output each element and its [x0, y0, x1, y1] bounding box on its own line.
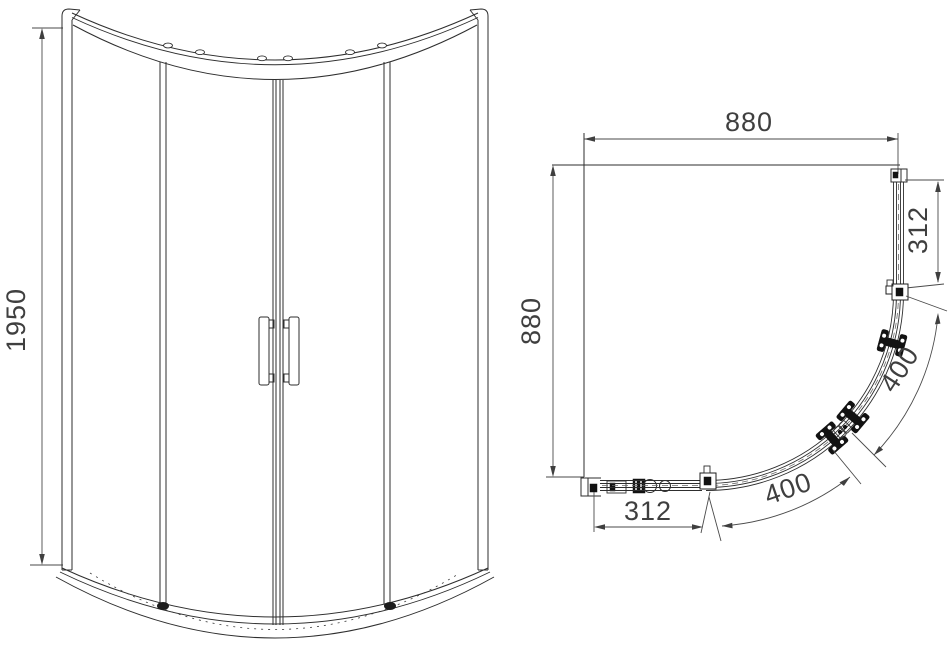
roller-nub — [258, 56, 267, 61]
arrow-arc-start — [935, 313, 941, 324]
dim-bottom-panel-label: 312 — [624, 496, 672, 526]
roller-nub — [196, 50, 205, 55]
arrow-up — [550, 165, 556, 176]
front-elevation-view: 1950 — [1, 9, 494, 638]
arrow-up — [39, 28, 45, 39]
plan-view: 880 880 — [516, 107, 947, 541]
dimension-bottom-panel-312: 312 — [594, 492, 710, 533]
sliding-doors-meeting-stiles — [273, 80, 283, 625]
bottom-rail — [56, 568, 494, 638]
curved-door-track — [706, 293, 904, 491]
shower-enclosure-diagram: 1950 — [0, 0, 948, 645]
arrow-down — [39, 554, 45, 565]
arrow-left — [584, 136, 595, 142]
right-wall-profile — [470, 9, 488, 570]
dimension-door-lower-400: 400 — [709, 450, 861, 541]
dimension-width-880: 880 — [584, 107, 898, 142]
arrow-right — [887, 136, 898, 142]
arrow-arc-end — [722, 523, 733, 529]
corner-bracket-bottom — [700, 466, 716, 489]
wall-profile-bottom-left — [581, 478, 601, 496]
roller-nub — [378, 43, 387, 48]
left-wall-profile — [62, 9, 80, 570]
door-handles — [259, 317, 299, 385]
technical-drawing-page: 1950 — [0, 0, 948, 645]
arrow-up — [935, 181, 941, 192]
bottom-fixed-panel — [581, 478, 702, 496]
arrow-right — [692, 524, 703, 530]
door-guide-foot — [157, 602, 169, 610]
arrow-down — [550, 466, 556, 477]
arrow-arc-start — [840, 477, 851, 486]
dimension-right-panel-312: 312 — [903, 180, 944, 288]
wall-profile-top-right — [891, 169, 907, 182]
arrow-arc-end — [874, 446, 883, 455]
rail-hatching — [90, 573, 460, 630]
top-rail — [72, 13, 478, 80]
door-guide-foot — [384, 602, 396, 610]
arrow-left — [594, 524, 605, 530]
dim-right-panel-label: 312 — [903, 206, 933, 254]
arrow-down — [935, 272, 941, 283]
roller-nub — [284, 56, 293, 61]
dimension-door-upper-400: 400 — [852, 296, 947, 467]
roller-nub — [164, 43, 173, 48]
right-door-handle — [284, 317, 299, 385]
dim-width-label: 880 — [725, 107, 773, 137]
door-stiles — [160, 62, 390, 625]
left-door-handle — [259, 317, 274, 385]
dimension-depth-880: 880 — [516, 165, 556, 477]
roller-nub — [346, 50, 355, 55]
dimension-height-1950: 1950 — [1, 28, 63, 565]
dim-height-label: 1950 — [1, 288, 31, 352]
dim-depth-label: 880 — [516, 297, 546, 345]
corner-bracket-top — [886, 280, 908, 300]
roller-wheel — [660, 481, 671, 492]
